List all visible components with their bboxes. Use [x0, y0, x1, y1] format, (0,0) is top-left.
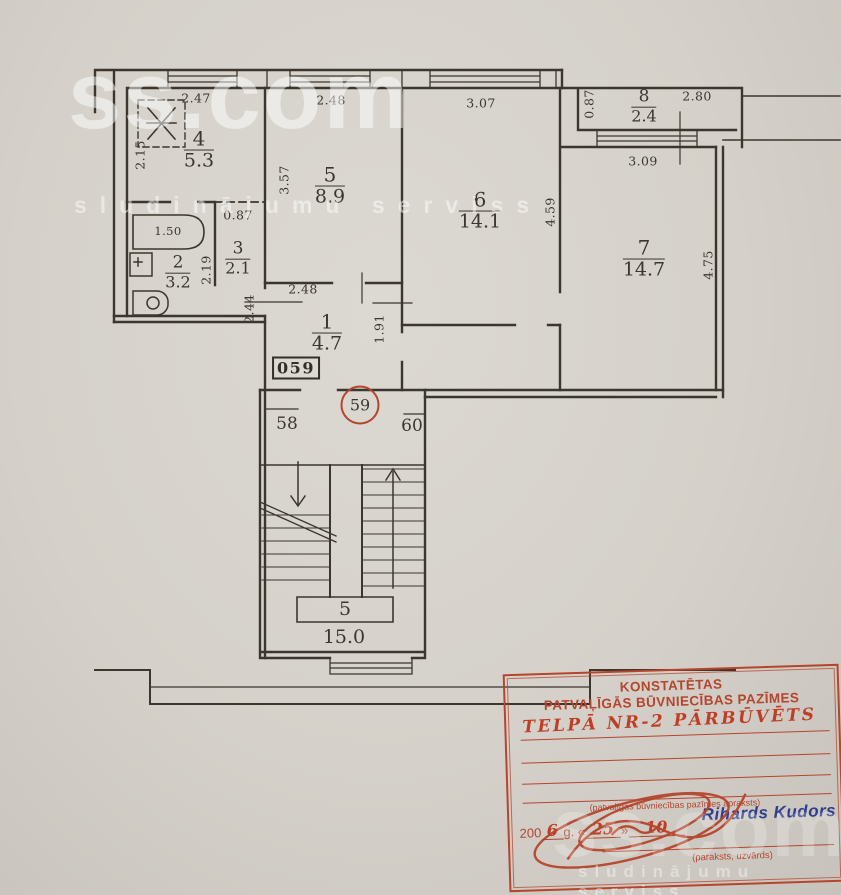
room-2-label: 2 3.2 [165, 255, 190, 292]
landing-apartment-58: 58 [276, 414, 298, 434]
room-6-number: 6 [459, 190, 501, 212]
dim-room4-depth: 2.15 [133, 140, 148, 169]
landing-apartment-59: 59 [350, 396, 370, 415]
sink [130, 253, 152, 276]
room-5-label: 5 8.9 [315, 165, 345, 208]
room-1-label: 1 4.7 [312, 312, 342, 355]
room-6-area: 14.1 [459, 212, 501, 233]
dim-room6-width: 3.07 [466, 96, 495, 111]
inspection-stamp: KONSTATĒTAS PATVAĻĪGĀS BŪVNIECĪBAS PAZĪM… [503, 664, 841, 892]
staircase-number: 5 [339, 598, 351, 620]
room-4-area: 5.3 [184, 151, 214, 172]
room-8-label: 8 2.4 [631, 89, 656, 126]
dim-room1-width: 2.48 [288, 282, 317, 297]
stamp-ruled-line [521, 753, 830, 764]
room-4-label: 4 5.3 [184, 129, 214, 172]
dim-room5-width: 2.48 [316, 93, 345, 108]
room-6-label: 6 14.1 [459, 190, 501, 233]
apartment-number-plate: 059 [272, 357, 320, 380]
room-5-number: 5 [315, 165, 345, 187]
signature-scribble [510, 768, 773, 886]
toilet [133, 291, 168, 315]
room-3-label: 3 2.1 [225, 241, 250, 278]
dim-room5-depth: 3.57 [277, 165, 292, 194]
landing-apartment-59-circled: 59 [341, 386, 380, 425]
dim-room3-depth: 2.44 [242, 294, 257, 323]
dim-room8-width: 2.80 [682, 89, 711, 104]
landing-apartment-60: 60 [401, 416, 423, 436]
stair-treads [262, 469, 425, 586]
dim-room2-depth: 2.19 [199, 255, 214, 284]
room-3-number: 3 [225, 241, 250, 260]
neighbour-stubs [723, 96, 840, 140]
dim-bathtub: 1.50 [154, 224, 181, 238]
room-7-number: 7 [623, 238, 665, 260]
dim-room8-depth: 0.87 [582, 89, 597, 118]
dim-room4-width: 2.47 [181, 91, 210, 106]
dim-room7-depth: 4.75 [701, 250, 716, 279]
room-1-area: 4.7 [312, 334, 342, 355]
dim-room1-depth: 1.91 [372, 314, 387, 343]
room-2-number: 2 [165, 255, 190, 274]
room-5-area: 8.9 [315, 187, 345, 208]
dim-room6-depth: 4.59 [543, 197, 558, 226]
room-3-area: 2.1 [225, 260, 250, 278]
room-7-label: 7 14.7 [623, 238, 665, 281]
windows [168, 70, 697, 674]
room-8-area: 2.4 [631, 108, 656, 126]
dim-room3-width: 0.87 [223, 208, 252, 223]
room-4-number: 4 [184, 129, 214, 151]
room-1-number: 1 [312, 312, 342, 334]
staircase-area: 15.0 [323, 626, 365, 648]
dim-room7-width: 3.09 [628, 154, 657, 169]
room-7-area: 14.7 [623, 260, 665, 281]
room-8-number: 8 [631, 89, 656, 108]
stair-break-line [260, 502, 336, 542]
stair-direction-arrows [291, 462, 400, 588]
room-2-area: 3.2 [165, 274, 190, 292]
scanned-floorplan-photo: 2.47 2.15 2.48 3.57 3.07 4.59 0.87 2.80 … [0, 0, 841, 895]
